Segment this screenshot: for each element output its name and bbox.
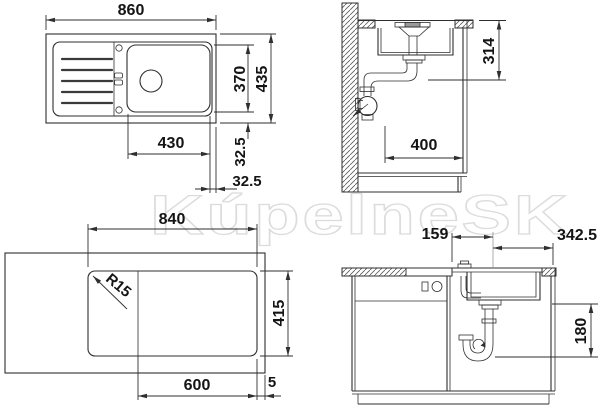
dim-bowl-width: 430 <box>128 114 216 193</box>
dim-label-180: 180 <box>573 318 590 345</box>
dim-label-400: 400 <box>411 137 438 154</box>
dim-label-840: 840 <box>159 211 186 228</box>
dim-label-r15: R15 <box>102 270 134 301</box>
dim-label-600: 600 <box>184 377 211 394</box>
sink-outline <box>46 34 216 123</box>
bowl-section <box>378 28 453 55</box>
sink-rim <box>53 42 212 116</box>
dim-label-435: 435 <box>254 66 271 93</box>
counter-hatch-right <box>542 268 556 276</box>
top-plan-view: 860 435 370 32.5 <box>46 2 276 193</box>
front-trap <box>459 300 501 361</box>
counter-section-left <box>358 20 375 28</box>
dim-label-32-5-h: 32.5 <box>232 173 261 190</box>
dim-sink-width: 860 <box>46 2 216 30</box>
dim-trap-offset: 400 <box>385 126 463 163</box>
drainboard-grooves <box>62 59 112 103</box>
dim-label-32-5-v: 32.5 <box>232 137 249 166</box>
front-section-view: 159 342.5 180 <box>342 226 598 404</box>
knob-mark <box>432 282 442 292</box>
dim-label-314: 314 <box>481 38 498 65</box>
dim-label-5: 5 <box>268 374 276 391</box>
strainer-cap <box>405 23 420 28</box>
bowl-front-section <box>467 272 540 300</box>
dim-edge-gap: 5 <box>257 374 281 400</box>
dim-bowl-depth: 370 <box>214 45 254 112</box>
overflow-fitting <box>458 261 471 268</box>
dim-bowl-section: 600 <box>138 356 257 400</box>
strainer-assembly <box>395 23 430 64</box>
wall-section <box>342 3 358 192</box>
tap-hole-bottom <box>116 107 122 113</box>
sink-dimension-drawing: KúpelneSK 860 <box>0 0 600 412</box>
radius-callout: R15 <box>93 270 134 309</box>
dim-label-159: 159 <box>422 226 449 243</box>
dim-label-430: 430 <box>158 135 185 152</box>
cabinet-side <box>358 21 467 193</box>
counter-section-right <box>455 20 473 28</box>
dim-label-415: 415 <box>271 300 288 327</box>
dim-label-370: 370 <box>232 66 249 93</box>
dim-label-342-5: 342.5 <box>557 227 597 244</box>
dim-offset-bottom: 32.5 <box>232 123 250 167</box>
side-section-view: 314 400 <box>342 3 506 192</box>
bowl-outline <box>127 45 210 112</box>
tap-hole-top <box>116 45 122 51</box>
drain-hole <box>140 70 162 92</box>
cabinet-front <box>352 268 555 404</box>
brand-mark <box>115 73 123 85</box>
dim-label-860: 860 <box>118 2 145 19</box>
handle-mark <box>422 282 428 291</box>
counter-hatch-left <box>342 268 406 276</box>
dim-trap-drop: 180 <box>495 304 598 357</box>
drain-pipe <box>360 63 417 96</box>
technical-drawing-canvas: KúpelneSK 860 <box>0 0 600 412</box>
